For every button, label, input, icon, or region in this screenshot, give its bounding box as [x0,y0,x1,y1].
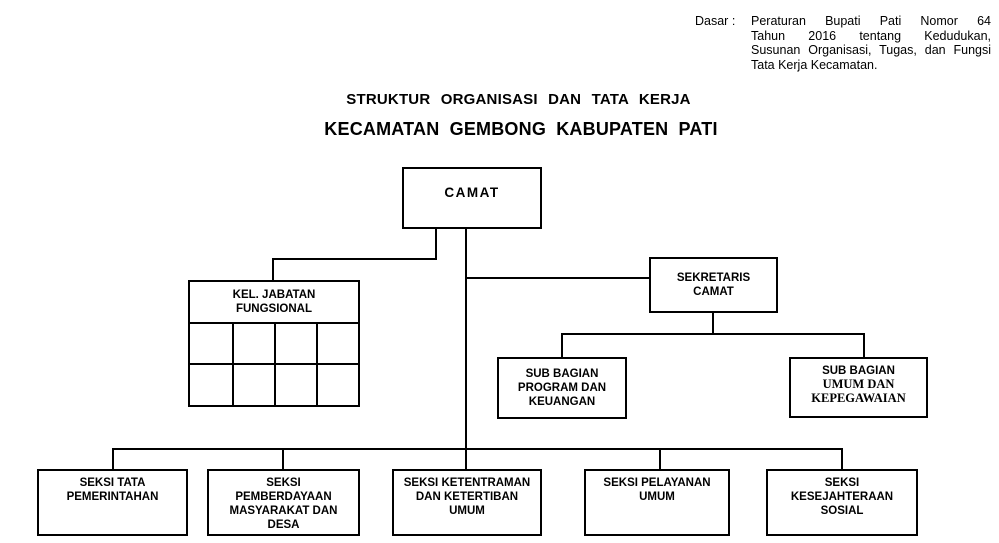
connector-camat-left-stub [435,229,437,258]
connector-sekretaris-stub [712,313,714,333]
grid-cell [190,363,232,405]
legal-basis-line: Peraturan Bupati Pati Nomor 64 [751,14,991,29]
grid-cell [274,322,316,363]
connector-seksi-horizontal [112,448,843,450]
grid-cell [274,363,316,405]
connector-sub-program-drop [561,333,563,357]
node-kel-jabatan-fungsional: KEL. JABATAN FUNGSIONAL [188,280,360,407]
grid-cell [316,322,358,363]
connector-sub-umum-drop [863,333,865,357]
legal-basis-text: Peraturan Bupati Pati Nomor 64 Tahun 201… [751,14,991,73]
node-sub-bagian-program-keuangan: SUB BAGIAN PROGRAM DAN KEUANGAN [497,357,627,419]
node-sub-bagian-umum-kepegawaian: SUB BAGIAN UMUM DAN KEPEGAWAIAN [789,357,928,418]
org-chart-page: Dasar : Peraturan Bupati Pati Nomor 64 T… [0,0,999,543]
legal-basis-label: Dasar : [695,14,751,73]
grid-cell [232,322,274,363]
legal-basis-note: Dasar : Peraturan Bupati Pati Nomor 64 T… [695,14,991,73]
connector-trunk-to-sekretaris [465,277,649,279]
connector-kel-jabatan-drop [272,258,274,280]
connector-seksi1-drop [112,448,114,469]
node-seksi-pelayanan-umum: SEKSI PELAYANAN UMUM [584,469,730,536]
connector-camat-to-kel-jabatan-horizontal [272,258,437,260]
legal-basis-line: Tata Kerja Kecamatan. [751,58,991,73]
page-title-line2: KECAMATAN GEMBONG KABUPATEN PATI [43,119,999,140]
page-title-line1: STRUKTUR ORGANISASI DAN TATA KERJA [38,91,999,108]
grid-cell [232,363,274,405]
connector-seksi4-drop [659,448,661,469]
grid-cell [316,363,358,405]
grid-cell [190,322,232,363]
node-seksi-tata-pemerintahan: SEKSI TATA PEMERINTAHAN [37,469,188,536]
node-seksi-pemberdayaan-masyarakat-desa: SEKSI PEMBERDAYAAN MASYARAKAT DAN DESA [207,469,360,536]
kel-jabatan-fungsional-grid [190,322,358,405]
sub-bagian-umum-line1: SUB BAGIAN [822,364,895,378]
legal-basis-line: Susunan Organisasi, Tugas, dan Fungsi [751,43,991,58]
connector-camat-main-trunk [465,229,467,469]
connector-subbagian-horizontal [561,333,865,335]
connector-seksi5-drop [841,448,843,469]
node-camat: CAMAT [402,167,542,229]
node-seksi-ketentraman-ketertiban-umum: SEKSI KETENTRAMAN DAN KETERTIBAN UMUM [392,469,542,536]
kel-jabatan-fungsional-label: KEL. JABATAN FUNGSIONAL [190,282,358,322]
node-sekretaris-camat: SEKRETARIS CAMAT [649,257,778,313]
node-seksi-kesejahteraan-sosial: SEKSI KESEJAHTERAAN SOSIAL [766,469,918,536]
sub-bagian-umum-rest: UMUM DAN KEPEGAWAIAN [811,378,905,405]
connector-seksi2-drop [282,448,284,469]
legal-basis-line: Tahun 2016 tentang Kedudukan, [751,29,991,44]
